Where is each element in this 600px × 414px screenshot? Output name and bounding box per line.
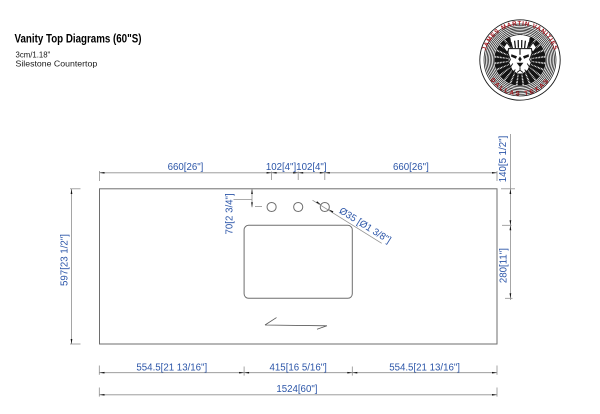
svg-text:280[11"]: 280[11"] [498,248,509,283]
svg-text:Ø35 [Ø1 3/8"]: Ø35 [Ø1 3/8"] [337,206,393,247]
svg-text:Silestone Countertop: Silestone Countertop [16,59,98,69]
svg-text:70[2 3/4"]: 70[2 3/4"] [225,193,236,234]
svg-text:597[23 1/2"]: 597[23 1/2"] [60,234,71,286]
svg-text:660[26"]: 660[26"] [168,162,204,173]
svg-text:554.5[21 13/16"]: 554.5[21 13/16"] [389,363,460,374]
svg-text:Vanity Top Diagrams (60"S): Vanity Top Diagrams (60"S) [15,34,142,46]
svg-text:415[16 5/16"]: 415[16 5/16"] [270,363,327,374]
svg-text:554.5[21 13/16"]: 554.5[21 13/16"] [136,363,207,374]
svg-text:1524[60"]: 1524[60"] [276,384,317,395]
svg-text:102[4"]102[4"]: 102[4"]102[4"] [266,162,327,173]
svg-text:140[5 1/2"]: 140[5 1/2"] [498,136,509,183]
svg-text:660[26"]: 660[26"] [393,162,429,173]
